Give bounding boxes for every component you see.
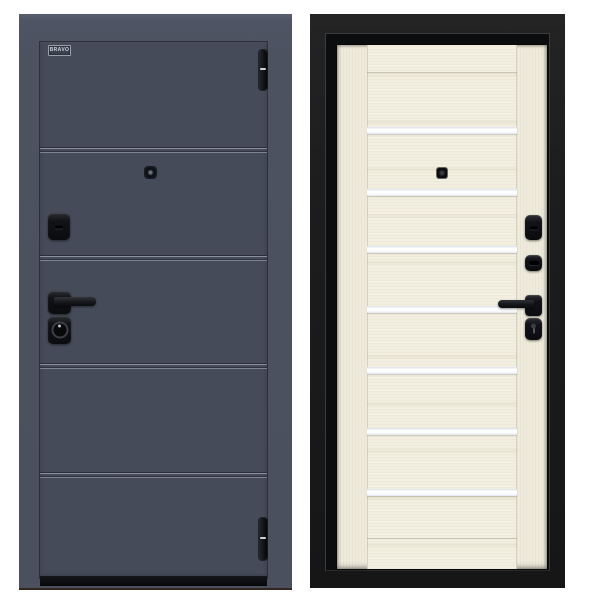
exterior-door: BRAVO [19, 14, 292, 590]
glass-strip [367, 306, 517, 313]
thumbturn-escutcheon [525, 255, 542, 271]
glass-strip [367, 189, 517, 196]
key-turn [533, 325, 535, 334]
lock-cylinder [51, 322, 68, 339]
door-handle-exterior [54, 297, 96, 306]
groove [40, 147, 267, 153]
peephole-exterior [145, 167, 156, 178]
groove [40, 472, 267, 478]
panel-bottom-line [367, 538, 517, 539]
door-threshold [40, 576, 267, 586]
cylinder-lock-interior [525, 318, 542, 340]
door-handle-interior [498, 300, 534, 308]
groove [40, 255, 267, 261]
upper-lock-escutcheon-exterior [48, 213, 70, 240]
keyhole-slot [55, 225, 63, 228]
interior-leaf [337, 45, 547, 569]
thumbturn-slot [529, 261, 539, 265]
exterior-leaf: BRAVO [40, 42, 267, 578]
glass-strip [367, 428, 517, 435]
lock-slot [530, 226, 538, 229]
panel-top-line [367, 72, 517, 73]
glass-strip [367, 127, 517, 134]
glass-strip [367, 367, 517, 374]
hinge-bottom [259, 518, 267, 560]
peephole-interior [437, 168, 447, 178]
glass-strip [367, 246, 517, 253]
glass-strip [367, 489, 517, 496]
interior-door [310, 14, 565, 588]
groove [40, 363, 267, 369]
hinge-top [259, 50, 267, 90]
upper-lock-escutcheon-interior [525, 215, 542, 240]
cylinder-lock-exterior [48, 316, 71, 344]
brand-plate: BRAVO [48, 45, 71, 56]
